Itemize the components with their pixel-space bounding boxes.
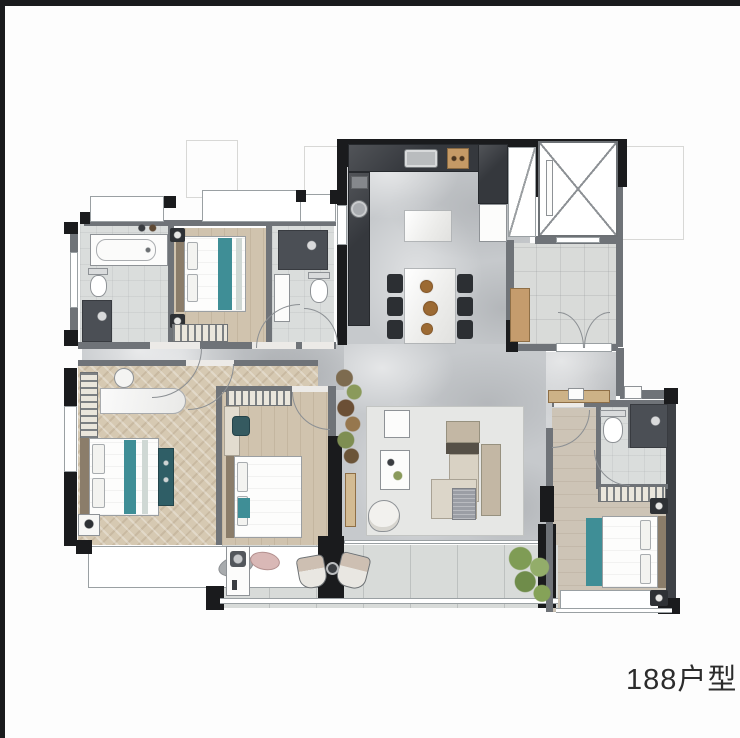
fridge — [479, 204, 507, 242]
bed-runner — [124, 440, 136, 514]
plate — [421, 323, 433, 335]
wall-segment — [64, 368, 77, 406]
bed-headboard — [80, 438, 89, 516]
left-frame-bar — [0, 0, 5, 738]
shoe-cabinet — [510, 288, 530, 342]
coffee-table — [380, 450, 410, 490]
kitchen-island — [404, 210, 452, 242]
bed-runner — [586, 518, 602, 586]
sofa-back-cushion — [446, 421, 480, 443]
plate — [420, 280, 433, 293]
bay-window — [202, 190, 302, 222]
toilet-tank — [88, 268, 108, 275]
dining-chair — [457, 320, 473, 339]
wall-segment — [164, 196, 176, 208]
wall-segment — [337, 245, 347, 345]
toilet-tank — [308, 272, 330, 279]
prep-sink — [350, 200, 368, 218]
wall-segment — [80, 212, 90, 224]
bed-runner — [236, 238, 242, 310]
pillow — [237, 462, 248, 492]
pillow — [187, 242, 198, 270]
bed-headboard — [226, 456, 234, 538]
floral-arrangement — [336, 366, 364, 466]
pillow — [92, 444, 105, 474]
toilet — [90, 275, 107, 297]
balcony-table — [326, 562, 339, 575]
dining-chair — [387, 274, 403, 293]
bay-window-rail — [556, 608, 672, 613]
pillow — [92, 478, 105, 508]
toilet-tank — [600, 410, 626, 417]
pillow — [640, 554, 651, 584]
washing-machine-drum — [230, 551, 246, 567]
toilet — [603, 417, 623, 443]
sofa-side — [481, 444, 501, 516]
wall-segment — [296, 190, 306, 202]
bed-runner — [142, 440, 148, 514]
window — [70, 252, 78, 308]
wardrobe — [172, 324, 228, 342]
basin — [568, 388, 584, 400]
bedroom-bench — [158, 448, 174, 506]
floor-plan-image: 188户型 — [0, 0, 740, 738]
unit-type-label: 188户型 — [626, 656, 737, 698]
wardrobe — [226, 390, 292, 406]
bed-runner — [218, 238, 232, 310]
elevator-panel — [546, 160, 553, 216]
kitchen-sink — [404, 149, 438, 168]
kitchen-tall-unit — [478, 144, 508, 204]
kitchen-counter — [348, 172, 370, 326]
window — [64, 406, 77, 472]
throw-blanket — [452, 488, 476, 520]
bed-headboard — [658, 516, 666, 588]
wall-segment — [330, 190, 342, 204]
plants — [506, 544, 554, 602]
window — [337, 205, 347, 245]
wall-segment — [616, 348, 624, 396]
side-console — [345, 473, 356, 527]
top-frame-bar — [0, 0, 740, 6]
utility-shaft — [508, 147, 536, 237]
dining-chair — [457, 274, 473, 293]
dining-chair — [387, 320, 403, 339]
stove — [447, 148, 469, 169]
accent-chair — [384, 410, 410, 438]
bathtub-basin — [96, 239, 156, 261]
dining-chair — [387, 297, 403, 316]
small-appliance — [351, 176, 368, 189]
sofa-dark-cushion — [446, 443, 479, 454]
pillow — [187, 274, 198, 302]
shower — [630, 404, 668, 448]
wall-segment — [664, 388, 678, 404]
wall-segment — [64, 472, 77, 546]
dining-chair — [457, 297, 473, 316]
vanity-sink — [134, 220, 160, 236]
bay-window — [90, 196, 164, 222]
nightstand — [170, 228, 185, 242]
faucet — [232, 580, 237, 590]
shower — [82, 300, 112, 342]
shower — [278, 230, 328, 270]
basin — [624, 386, 642, 399]
master-bay-window — [88, 546, 320, 588]
teal-pillow — [238, 498, 250, 518]
wall-segment — [540, 486, 554, 522]
bed-headboard — [176, 236, 184, 312]
wall-segment — [64, 330, 78, 346]
wall-segment — [76, 540, 92, 554]
swivel-chair — [368, 500, 400, 532]
wall-segment — [64, 222, 78, 234]
desk-chair — [232, 416, 250, 436]
stool — [114, 368, 134, 388]
exterior-outline — [622, 146, 684, 240]
plate — [423, 301, 438, 316]
pillow — [640, 520, 651, 550]
wall-segment — [216, 386, 222, 545]
nightstand — [78, 514, 100, 536]
toilet — [310, 279, 328, 303]
elevator-door — [556, 237, 600, 243]
nightstand — [650, 498, 668, 514]
nightstand — [650, 590, 668, 606]
